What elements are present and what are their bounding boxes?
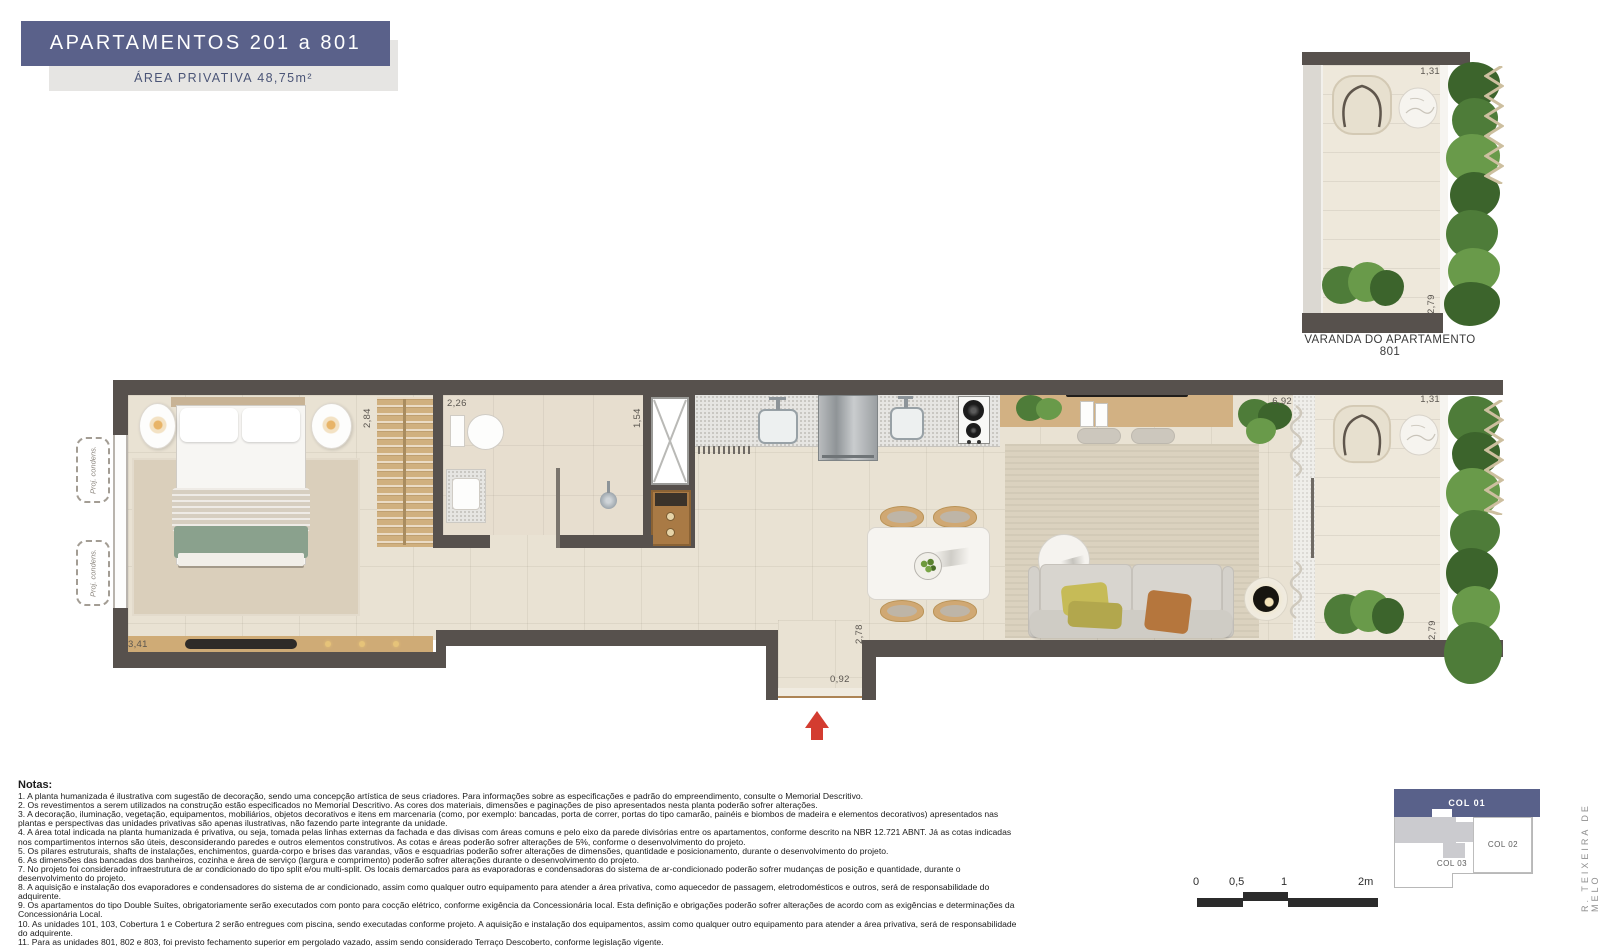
dim-balcony-width: 1,31 xyxy=(1404,394,1440,405)
balcony-round-table xyxy=(1399,414,1439,456)
vanity-basin xyxy=(452,478,480,510)
varanda-dim-depth: 2,79 xyxy=(1426,280,1437,314)
curtain xyxy=(1284,400,1308,638)
entry-arrow-stem xyxy=(811,727,823,740)
cooktop-burner-small xyxy=(966,423,981,438)
scale-bar-segment xyxy=(1243,892,1288,901)
cabinet-knob xyxy=(666,512,675,521)
dim-bedroom-width: 3,41 xyxy=(128,639,148,650)
decor-frame xyxy=(1080,401,1094,427)
plant-foliage xyxy=(1444,282,1500,326)
sofa-pillow-yellow xyxy=(1067,601,1122,630)
wall-bedroom-bath xyxy=(433,395,443,548)
note-item: 8. A aquisição e instalação dos evaporad… xyxy=(18,883,1020,901)
varanda-caption: VARANDA DO APARTAMENTO 801 xyxy=(1295,334,1485,358)
wall-top xyxy=(113,380,1503,395)
keyplan-col02-label: COL 02 xyxy=(1478,840,1528,849)
bed-pillow xyxy=(180,408,238,442)
table-lamp xyxy=(321,415,341,435)
spot-light xyxy=(359,641,365,647)
sofa-pillow-brown xyxy=(1144,589,1193,634)
balcony-drain-strip xyxy=(1440,390,1448,642)
dim-bath: 2,26 xyxy=(447,398,467,409)
floorplan-page: APARTAMENTOS 201 a 801 ÁREA PRIVATIVA 48… xyxy=(0,0,1600,947)
keyplan-col03-shape xyxy=(1394,817,1456,843)
dining-chair xyxy=(933,506,977,528)
keyplan-col03-arm xyxy=(1456,822,1473,842)
varanda-round-table xyxy=(1398,87,1438,129)
sideboard-tray xyxy=(185,639,297,649)
wall-bottom-hall xyxy=(443,630,766,646)
cooktop-knob xyxy=(977,440,981,444)
entry-arrow-icon xyxy=(805,711,829,728)
varanda-trellis xyxy=(1484,66,1504,184)
glazing-mullion xyxy=(1311,478,1314,558)
keyplan-outline xyxy=(1394,887,1453,888)
plant-foliage xyxy=(1444,622,1502,684)
table-lamp xyxy=(148,415,168,435)
bed-pillow xyxy=(242,408,300,442)
keyplan-outline xyxy=(1452,873,1453,888)
condenser-label: Proj. condens. xyxy=(78,439,108,501)
counter-vent-grille xyxy=(698,446,752,454)
dim-entry: 0,92 xyxy=(830,674,850,685)
keyplan-outline xyxy=(1394,817,1395,887)
street-name: R. TEIXEIRA DE MELO xyxy=(1580,782,1600,912)
wall-left-lower xyxy=(113,608,128,652)
page-title: APARTAMENTOS 201 a 801 xyxy=(21,21,390,66)
wall-bottom-bedroom xyxy=(113,652,446,668)
wardrobe-rail xyxy=(403,399,406,545)
condenser-projection-box: Proj. condens. xyxy=(76,540,110,606)
floor-lamp xyxy=(1253,586,1279,612)
wall-bath-bottom-right xyxy=(560,535,653,548)
keyplan-notch xyxy=(1432,809,1452,817)
dishwasher-panel xyxy=(818,395,878,461)
varanda-wall-top xyxy=(1302,52,1470,65)
condenser-projection-box: Proj. condens. xyxy=(76,437,110,503)
bed-foot-fold xyxy=(178,553,304,566)
varanda-drain-strip xyxy=(1440,65,1448,313)
keyplan-col03-label: COL 03 xyxy=(1430,859,1474,868)
dim-closet: 2,84 xyxy=(362,398,373,428)
keyplan-outline xyxy=(1452,873,1533,874)
balcony-trellis xyxy=(1484,400,1504,515)
prep-sink-faucet-bar xyxy=(898,396,913,399)
balcony-lounge-chair xyxy=(1330,403,1394,465)
dim-shaft: 1,54 xyxy=(632,398,643,428)
spot-light xyxy=(393,641,399,647)
scale-tick-1: 1 xyxy=(1281,876,1287,888)
note-item: 7. No projeto foi considerado infraestru… xyxy=(18,865,1020,883)
spot-light xyxy=(325,641,331,647)
toilet-tank xyxy=(450,415,465,447)
bar-cabinet-tray xyxy=(655,493,687,506)
shower-head xyxy=(600,492,617,509)
pouf xyxy=(1077,428,1121,444)
shower-arm xyxy=(607,481,610,493)
dining-chair xyxy=(933,600,977,622)
condenser-label: Proj. condens. xyxy=(78,542,108,604)
keyplan-outline xyxy=(1532,817,1533,874)
scale-tick-05: 0,5 xyxy=(1229,876,1244,888)
dining-chair xyxy=(880,600,924,622)
varanda-neighbor-strip xyxy=(1303,65,1323,313)
bedroom-window xyxy=(113,435,128,608)
shaft xyxy=(651,397,689,485)
varanda-dim-width: 1,31 xyxy=(1406,66,1440,77)
dishwasher-handle xyxy=(822,455,874,458)
note-item: 4. A área total indicada na planta human… xyxy=(18,828,1020,846)
toilet-bowl xyxy=(467,414,504,450)
page-subtitle: ÁREA PRIVATIVA 48,75m² xyxy=(49,66,398,91)
dim-balcony-depth: 2,79 xyxy=(1427,606,1438,640)
scale-bar-segment xyxy=(1288,898,1378,907)
cooktop-knob xyxy=(967,440,971,444)
wall-entry-left xyxy=(766,630,778,700)
notes-section: Notas: 1. A planta humanizada é ilustrat… xyxy=(18,779,1020,947)
scale-tick-2m: 2m xyxy=(1358,876,1373,888)
fruit-bowl xyxy=(914,552,942,580)
scale-bar-segment xyxy=(1197,898,1243,907)
entry-door-line xyxy=(778,696,862,698)
keyplan-col03-tab xyxy=(1443,843,1465,858)
varanda-lounge-chair xyxy=(1330,73,1394,137)
kitchen-sink xyxy=(758,409,798,444)
scale-tick-0: 0 xyxy=(1193,876,1199,888)
dining-chair xyxy=(880,506,924,528)
note-item: 3. A decoração, iluminação, vegetação, e… xyxy=(18,810,1020,828)
wall-left-upper xyxy=(113,380,128,435)
dim-hall: 2,78 xyxy=(854,614,865,644)
pouf xyxy=(1131,428,1175,444)
cabinet-knob xyxy=(666,528,675,537)
note-item: 10. As unidades 101, 103, Cobertura 1 e … xyxy=(18,920,1020,938)
wall-bottom-right xyxy=(862,640,1503,657)
cooktop-burner-large xyxy=(963,400,984,421)
varanda-wall-bottom xyxy=(1302,313,1443,333)
sink-faucet-bar xyxy=(769,397,786,400)
decor-frame xyxy=(1095,403,1108,427)
dim-living: 6,92 xyxy=(1256,396,1292,407)
note-item: 9. Os apartamentos do tipo Double Suítes… xyxy=(18,901,1020,919)
keyplan-col01: COL 01 xyxy=(1394,789,1540,817)
wall-bath-bottom-left xyxy=(443,535,490,548)
notes-heading: Notas: xyxy=(18,779,1020,791)
prep-sink xyxy=(890,407,924,440)
sofa-back xyxy=(1030,610,1232,638)
